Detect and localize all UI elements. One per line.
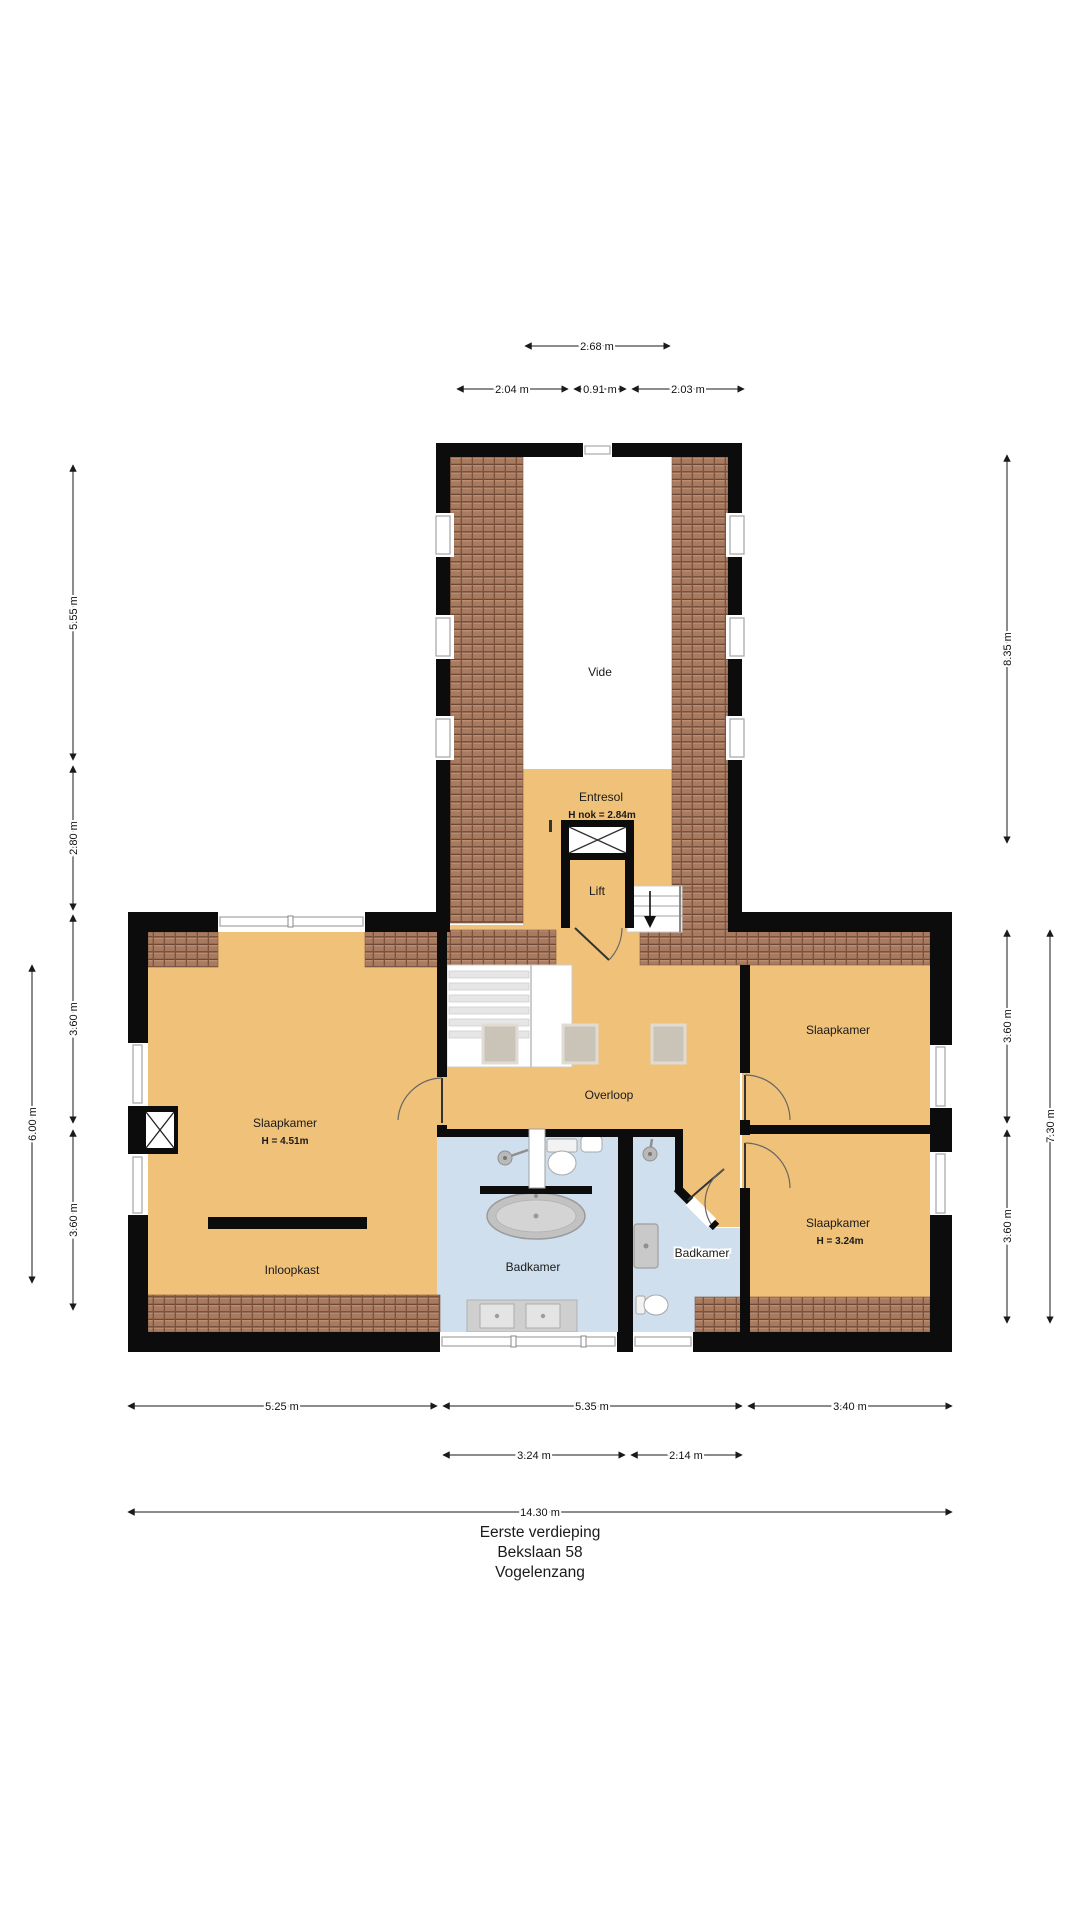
- dim-280: 2.80 m: [68, 821, 80, 855]
- dim-091: 0.91 m: [583, 384, 617, 396]
- dim-730: 7.30 m: [1045, 1109, 1057, 1143]
- label-inloopkast: Inloopkast: [265, 1263, 320, 1277]
- label-overloop: Overloop: [585, 1088, 634, 1102]
- window-bottom-b: [633, 1332, 693, 1352]
- dim-268: 2.68 m: [580, 341, 614, 353]
- roof-tiles-top-left: [148, 932, 218, 967]
- bathtub: [487, 1193, 585, 1239]
- room-vide-floor: [523, 457, 672, 769]
- label-badkamer-main: Badkamer: [506, 1260, 561, 1274]
- cabinet-square: [483, 1025, 517, 1063]
- roof-tiles-wing-right: [672, 457, 728, 888]
- cabinet-square: [652, 1025, 685, 1063]
- chimney: [128, 1106, 178, 1154]
- title-block: Eerste verdieping Bekslaan 58 Vogelenzan…: [480, 1524, 601, 1581]
- dim-204: 2.04 m: [495, 384, 529, 396]
- window-left-a: [128, 1043, 148, 1105]
- dim-360-right-a: 3.60 m: [1002, 1009, 1014, 1043]
- windows-wing-left: [432, 513, 454, 760]
- roof-tiles-wing-left: [450, 457, 523, 923]
- roof-tiles-bottom-right: [695, 1297, 930, 1332]
- windows-wing-right: [726, 513, 748, 760]
- label-entresol: Entresol: [579, 790, 623, 804]
- dim-600: 6.00 m: [27, 1107, 39, 1141]
- dim-1430: 14.30 m: [520, 1507, 560, 1519]
- dim-555: 5.55 m: [68, 596, 80, 630]
- dim-360-left-a: 3.60 m: [68, 1002, 80, 1036]
- label-slaapkamer-left: Slaapkamer: [253, 1116, 317, 1130]
- label-slaapkamer-left-height: H = 4.51m: [262, 1136, 309, 1147]
- label-slaapkamer-rt: Slaapkamer: [806, 1023, 870, 1037]
- label-lift: Lift: [589, 884, 606, 898]
- toilet-icon: [547, 1139, 577, 1175]
- roof-tiles-top-mid: [365, 930, 556, 967]
- cabinet-square: [563, 1025, 597, 1063]
- window-wing-top: [583, 443, 612, 457]
- dim-203: 2.03 m: [671, 384, 705, 396]
- window-bottom-a: [440, 1332, 617, 1352]
- roof-tiles-wing-right-low: [680, 888, 728, 932]
- floorplan-svg: Vide Entresol H nok = 2.84m Lift Overloo…: [0, 0, 1080, 1920]
- dim-340: 3.40 m: [833, 1401, 867, 1413]
- dim-324: 3.24 m: [517, 1450, 551, 1462]
- dim-535: 5.35 m: [575, 1401, 609, 1413]
- walk-in-closet-rail: [208, 1217, 367, 1229]
- roof-tiles-top-right: [640, 930, 930, 965]
- label-entresol-height: H nok = 2.84m: [568, 810, 636, 821]
- window-right-a: [930, 1045, 952, 1108]
- dim-214: 2.14 m: [669, 1450, 703, 1462]
- title-floor: Eerste verdieping: [480, 1524, 601, 1541]
- floorplan-page: Vide Entresol H nok = 2.84m Lift Overloo…: [0, 0, 1080, 1920]
- shower-tray: [634, 1224, 658, 1268]
- label-slaapkamer-rb-height: H = 3.24m: [817, 1236, 864, 1247]
- window-top-main: [218, 912, 365, 932]
- dim-360-right-b: 3.60 m: [1002, 1209, 1014, 1243]
- dim-360-left-b: 3.60 m: [68, 1203, 80, 1237]
- roof-tiles-bottom-left: [148, 1295, 440, 1332]
- toilet-icon-small: [636, 1295, 668, 1315]
- window-left-b: [128, 1155, 148, 1215]
- bathroom-pocket-door: [529, 1129, 545, 1188]
- washbasin-icon: [581, 1136, 602, 1152]
- door-jamb-mark: [549, 820, 552, 832]
- title-city: Vogelenzang: [495, 1564, 585, 1581]
- label-badkamer-small: Badkamer: [675, 1246, 730, 1260]
- dim-835: 8.35 m: [1002, 632, 1014, 666]
- stairs-entresol: [627, 886, 682, 932]
- dim-525: 5.25 m: [265, 1401, 299, 1413]
- overloop-cabinets: [483, 1025, 685, 1063]
- vanity-sinks: [467, 1300, 577, 1332]
- title-street: Bekslaan 58: [497, 1544, 582, 1561]
- label-vide: Vide: [588, 665, 612, 679]
- window-right-b: [930, 1152, 952, 1215]
- label-slaapkamer-rb: Slaapkamer: [806, 1216, 870, 1230]
